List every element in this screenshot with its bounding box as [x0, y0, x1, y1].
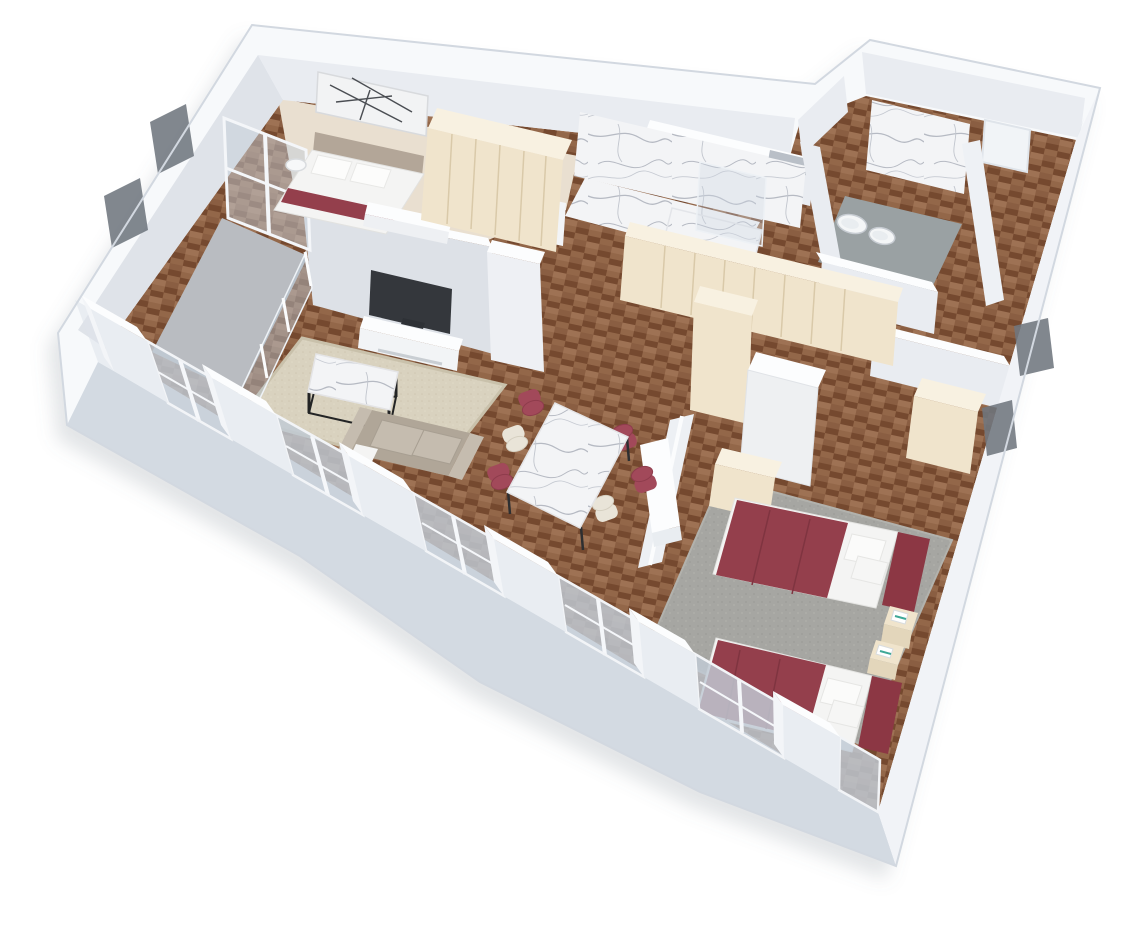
slit-window [1014, 318, 1054, 376]
pillar-face [487, 252, 544, 372]
entry-door [982, 120, 1030, 172]
floorplan-3d-render [0, 0, 1140, 941]
floorplan-svg [0, 0, 1140, 941]
tall-cabinet-front [690, 302, 752, 424]
side-table-left [286, 159, 306, 171]
